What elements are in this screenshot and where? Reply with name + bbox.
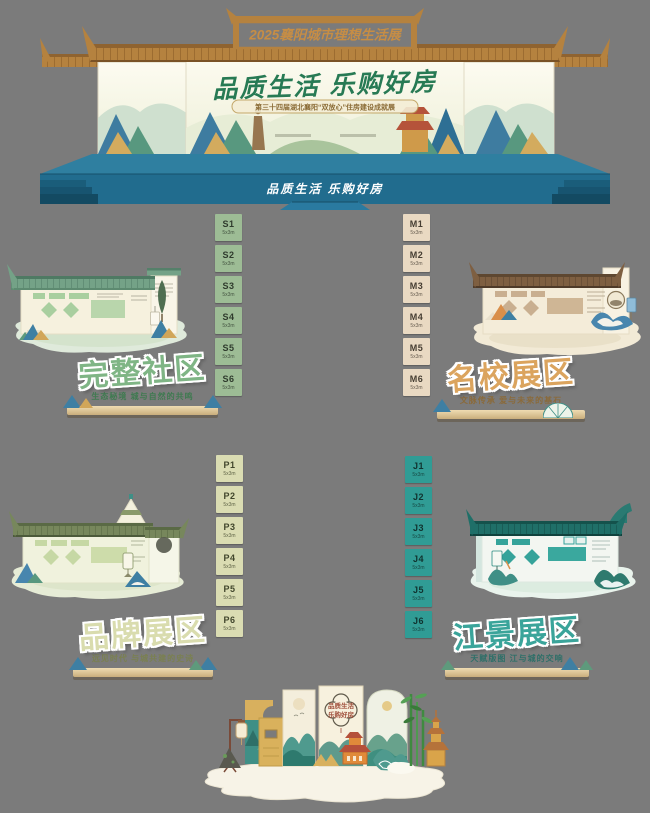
left-panel-mountains	[98, 103, 188, 154]
stall-m4: M45x3m	[403, 307, 430, 334]
centerpiece-installation: 品质生活 乐购好房	[195, 676, 455, 810]
zone-sign-base	[437, 410, 585, 419]
zone-title-brand: 品牌展区	[61, 614, 225, 655]
rock-icon	[189, 660, 203, 670]
zone-sign-base	[73, 668, 212, 677]
stage-banner-text: 2025襄阳城市理想生活展	[248, 28, 403, 43]
hanging-sign	[151, 312, 160, 325]
stall-p1: P15x3m	[216, 455, 243, 482]
booth-roof	[9, 511, 189, 539]
zone-sign-famous-school: 名校展区 文脉传承 爱与未来的基石	[425, 362, 597, 419]
stall-m1: M15x3m	[403, 214, 430, 241]
zone-sign-river-view: 江景展区 天赋版图 江与城的交响	[433, 620, 601, 677]
fan-icon	[543, 403, 573, 418]
stall-s2: S25x3m	[215, 245, 242, 272]
stall-column-p: P15x3m P25x3m P35x3m P45x3m P55x3m P65x3…	[216, 455, 243, 637]
stall-p2: P25x3m	[216, 486, 243, 513]
stall-j5: J55x3m	[405, 580, 432, 607]
rock-icon	[204, 395, 222, 408]
backdrop-subtitle: 第三十四届湖北襄阳“双放心”住房建设成就展	[255, 103, 396, 112]
stall-p4: P45x3m	[216, 548, 243, 575]
panel-landscape-left	[283, 690, 315, 766]
stall-p3: P35x3m	[216, 517, 243, 544]
zone-title-river-view: 江景展区	[432, 614, 602, 656]
right-panel-mountains	[464, 103, 554, 154]
booth-roof	[469, 262, 625, 288]
booth-building-famous-school	[455, 258, 650, 368]
stall-s4: S45x3m	[215, 307, 242, 334]
booth-roof	[466, 509, 628, 536]
stall-j3: J35x3m	[405, 518, 432, 545]
exhibition-design-canvas: 品质生活 乐购好房 第三十四届湖北襄阳“双放心”住房建设成就展 2025襄阳城市…	[0, 0, 650, 813]
booth-roof	[7, 264, 155, 290]
rock-icon	[79, 398, 93, 408]
top-plaque: 2025襄阳城市理想生活展	[226, 8, 424, 48]
stall-j4: J45x3m	[405, 549, 432, 576]
main-stage: 品质生活 乐购好房 第三十四届湖北襄阳“双放心”住房建设成就展 2025襄阳城市…	[40, 8, 610, 210]
zone-title-famous-school: 名校展区	[424, 356, 598, 398]
rock-icon	[69, 657, 87, 670]
scholar-rock	[219, 748, 241, 768]
stall-column-j: J15x3m J25x3m J35x3m J45x3m J55x3m J65x3…	[405, 456, 432, 638]
zone-sign-brand: 品牌展区 远见时代 与城共建的史诗	[62, 620, 224, 677]
panel-gold	[259, 718, 283, 766]
medallion-slogan-line1: 品质生活	[328, 701, 355, 710]
rock-icon	[561, 657, 579, 670]
rock-icon	[433, 399, 451, 412]
zone-sign-base	[67, 406, 218, 415]
stall-j2: J25x3m	[405, 487, 432, 514]
zone-sign-complete-community: 完整社区 生态秘境 城与自然的共鸣	[55, 358, 230, 415]
rock-icon	[579, 660, 593, 670]
stall-m3: M35x3m	[403, 276, 430, 303]
moon-window	[156, 537, 172, 553]
stall-m5: M55x3m	[403, 338, 430, 365]
stall-j6: J65x3m	[405, 611, 432, 638]
standing-sign	[123, 553, 133, 569]
stall-s3: S35x3m	[215, 276, 242, 303]
standing-sign	[627, 298, 636, 312]
stall-p5: P55x3m	[216, 579, 243, 606]
medallion-slogan-line2: 乐购好房	[328, 710, 355, 719]
zone-title-complete-community: 完整社区	[54, 352, 231, 394]
booth-building-river-view	[448, 495, 648, 613]
booth-building-brand	[5, 493, 200, 613]
stall-s1: S15x3m	[215, 214, 242, 241]
booth-building-complete-community	[5, 256, 200, 368]
standing-sign	[492, 551, 502, 566]
zone-sign-base	[445, 668, 589, 677]
stage-platform: 品质生活 乐购好房	[40, 154, 610, 210]
rock-icon	[441, 660, 455, 670]
spire	[117, 494, 145, 523]
stall-m2: M25x3m	[403, 245, 430, 272]
stall-j1: J15x3m	[405, 456, 432, 483]
front-steps	[280, 202, 370, 210]
stage-front-slogan: 品质生活 乐购好房	[266, 182, 383, 196]
